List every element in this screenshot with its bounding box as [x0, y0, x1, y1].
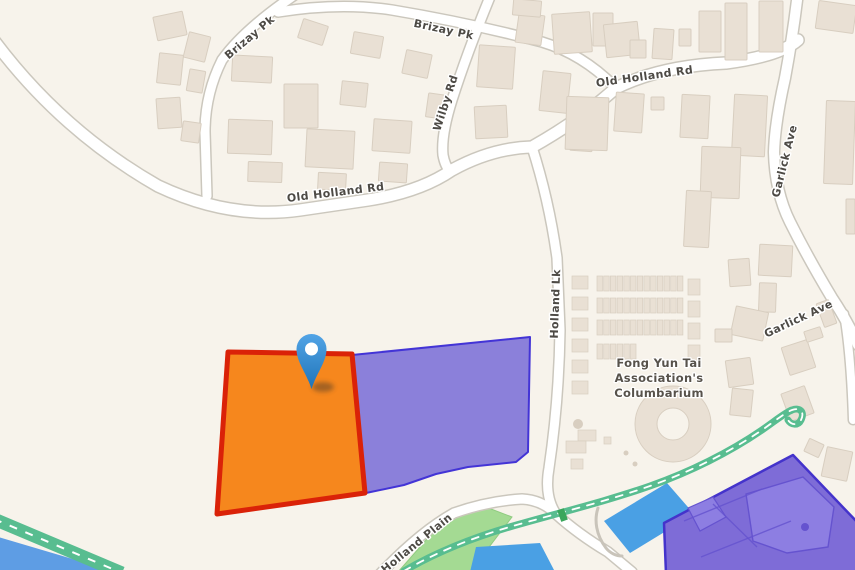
columbarium-block — [572, 297, 588, 310]
building — [758, 283, 776, 313]
pin-hole — [305, 343, 318, 356]
columbarium-niche — [651, 320, 657, 335]
columbarium-niche — [637, 320, 643, 335]
columbarium-niche — [677, 320, 683, 335]
map-canvas[interactable]: Brizay PkBrizay PkWilby RdOld Holland Rd… — [0, 0, 855, 570]
building — [565, 96, 609, 150]
building — [758, 244, 793, 277]
columbarium-niche — [604, 298, 610, 313]
building — [728, 258, 751, 286]
building — [725, 3, 747, 60]
columbarium-niche — [651, 276, 657, 291]
columbarium-niche — [644, 298, 650, 313]
building — [231, 55, 272, 83]
columbarium-block — [572, 318, 588, 331]
building — [679, 29, 691, 46]
columbarium-block — [688, 323, 700, 339]
columbarium-niche — [604, 344, 610, 359]
small-building — [604, 437, 611, 444]
columbarium-niche — [657, 320, 663, 335]
columbarium-block — [572, 360, 588, 373]
building — [821, 447, 853, 482]
building — [652, 28, 674, 59]
poi-label-line: Fong Yun Tai — [616, 356, 701, 370]
building — [552, 12, 593, 55]
columbarium-niche — [664, 298, 670, 313]
building — [815, 0, 855, 33]
building — [630, 40, 646, 58]
columbarium-niche — [631, 276, 637, 291]
columbarium-niche — [631, 298, 637, 313]
columbarium-niche — [597, 320, 603, 335]
building — [474, 105, 508, 139]
building — [156, 53, 183, 85]
columbarium-niche — [610, 298, 616, 313]
building — [846, 199, 855, 234]
building — [227, 119, 272, 155]
building — [725, 357, 754, 387]
columbarium-niche — [624, 320, 630, 335]
building — [684, 190, 712, 247]
columbarium-block — [688, 301, 700, 317]
columbarium-block — [572, 276, 588, 289]
columbarium-niche — [651, 298, 657, 313]
building — [186, 69, 206, 93]
map-dot — [633, 462, 638, 467]
columbarium-niche — [624, 276, 630, 291]
poi-label-line: Columbarium — [614, 386, 704, 400]
poi-label-line: Association's — [615, 371, 704, 385]
building — [700, 146, 741, 198]
building — [156, 97, 182, 129]
small-building — [571, 459, 583, 469]
columbarium-block — [572, 381, 588, 394]
building — [284, 84, 318, 128]
columbarium-niche — [637, 276, 643, 291]
building — [515, 12, 545, 45]
columbarium-niche — [677, 276, 683, 291]
building — [824, 101, 855, 185]
map-background — [0, 0, 855, 570]
columbarium-niche — [604, 320, 610, 335]
columbarium-niche — [624, 298, 630, 313]
columbarium-niche — [671, 298, 677, 313]
selected-parcel-polygon[interactable] — [217, 352, 365, 514]
estate-dot — [801, 523, 809, 531]
building — [350, 32, 383, 59]
columbarium-niche — [617, 320, 623, 335]
map-dot — [573, 419, 583, 429]
building — [680, 94, 710, 138]
columbarium-niche — [631, 320, 637, 335]
columbarium-block — [688, 279, 700, 295]
building — [759, 1, 783, 52]
columbarium-niche — [610, 276, 616, 291]
columbarium-niche — [671, 276, 677, 291]
building — [477, 45, 516, 89]
pin-shadow — [312, 382, 334, 392]
building — [730, 388, 754, 417]
building — [340, 81, 368, 108]
building — [181, 121, 202, 143]
columbarium-niche — [610, 320, 616, 335]
building — [699, 11, 721, 52]
columbarium-niche — [644, 320, 650, 335]
building — [651, 97, 664, 110]
columbarium-block — [572, 339, 588, 352]
building — [248, 161, 283, 182]
building — [512, 0, 541, 17]
building — [305, 129, 355, 169]
pond — [470, 543, 554, 570]
columbarium-niche — [597, 344, 603, 359]
columbarium-niche — [664, 320, 670, 335]
columbarium-niche — [617, 298, 623, 313]
building — [402, 50, 432, 79]
road-label: Holland Lk — [548, 269, 563, 339]
columbarium-niche — [677, 298, 683, 313]
columbarium-niche — [664, 276, 670, 291]
map-viewport[interactable]: Brizay PkBrizay PkWilby RdOld Holland Rd… — [0, 0, 855, 570]
building — [730, 306, 768, 341]
columbarium-niche — [637, 298, 643, 313]
columbarium-niche — [671, 320, 677, 335]
columbarium-niche — [657, 298, 663, 313]
columbarium-niche — [604, 276, 610, 291]
columbarium-niche — [597, 298, 603, 313]
small-building — [578, 430, 596, 441]
building — [614, 92, 645, 133]
small-building — [566, 441, 586, 453]
map-dot — [624, 451, 629, 456]
columbarium-niche — [617, 276, 623, 291]
columbarium-niche — [657, 276, 663, 291]
building — [372, 119, 412, 154]
columbarium-niche — [610, 344, 616, 359]
building — [715, 329, 732, 342]
columbarium-niche — [644, 276, 650, 291]
columbarium-niche — [597, 276, 603, 291]
